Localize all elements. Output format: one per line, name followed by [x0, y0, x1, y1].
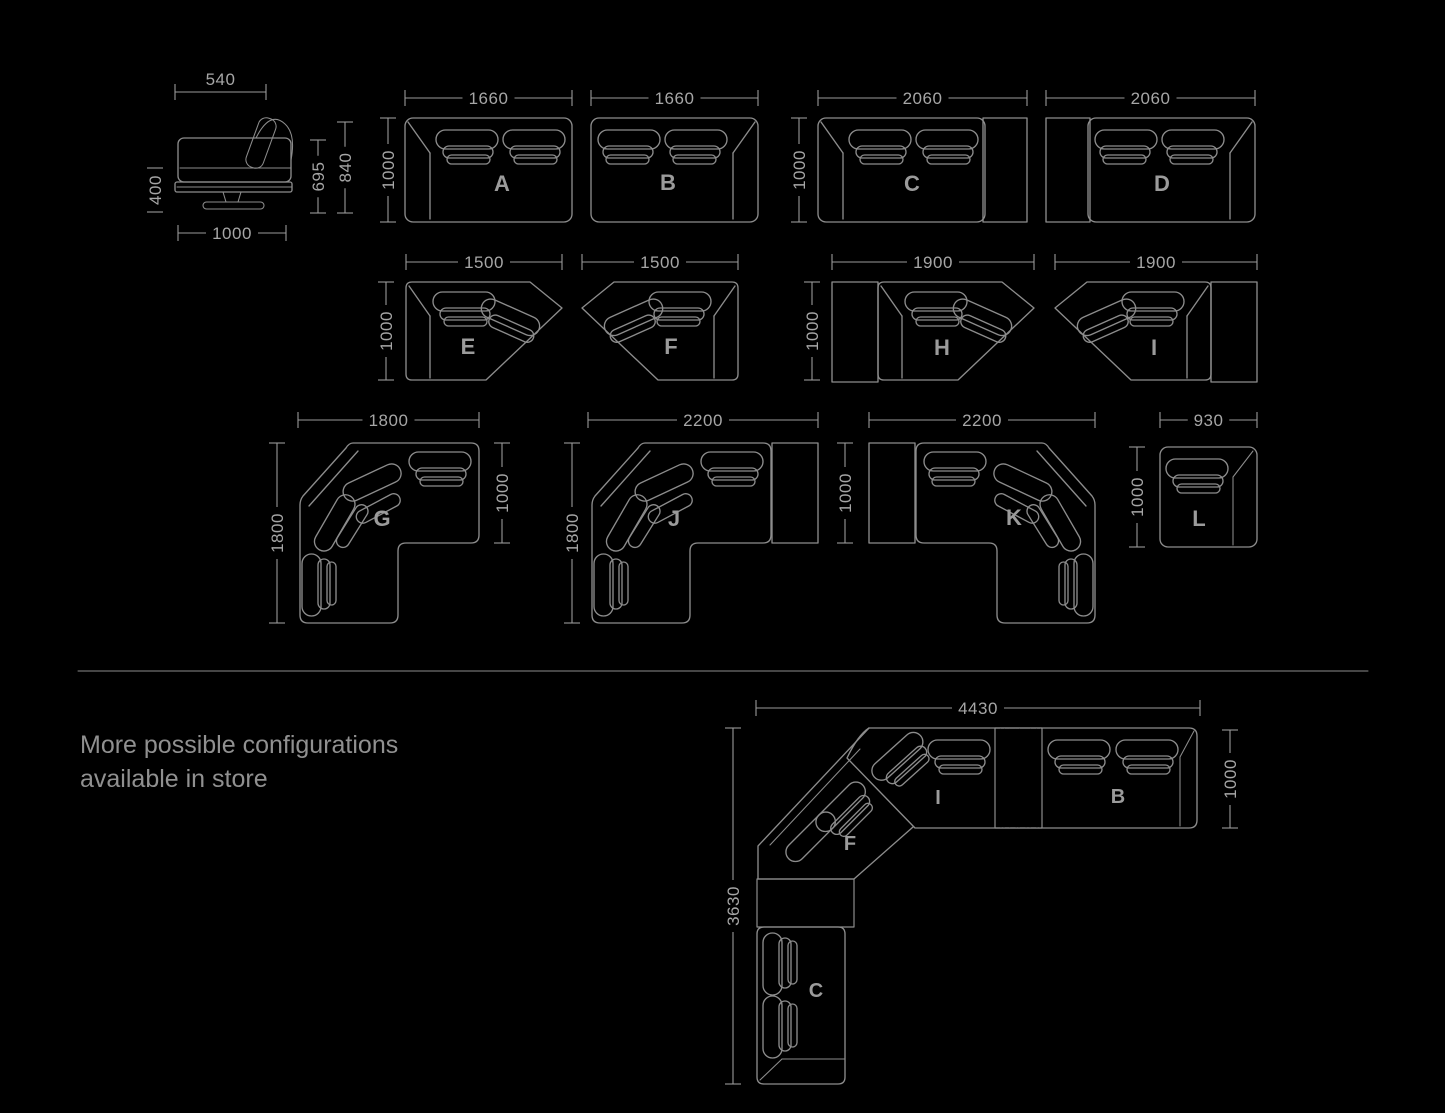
- dimension: 1000: [178, 224, 286, 243]
- dimension-label: 1000: [379, 150, 398, 190]
- config-module-c-label: C: [809, 980, 823, 1002]
- config-module-f-label: F: [844, 833, 856, 855]
- module-d-drawing: [1046, 118, 1255, 222]
- dimension: 1500: [406, 253, 562, 272]
- dimension-label: 2060: [903, 89, 943, 108]
- store-note: More possible configurations available i…: [80, 731, 398, 793]
- dimension-label: 1500: [464, 253, 504, 272]
- diagram-canvas: 5401000400695840166016602060206010001000…: [0, 0, 1445, 1113]
- store-note-line2: available in store: [80, 765, 268, 793]
- module-j-label: J: [668, 506, 680, 531]
- module-h-drawing: [832, 282, 1034, 382]
- module-a-drawing: [405, 118, 572, 222]
- dimension: 1900: [1055, 253, 1257, 272]
- module-b-label: B: [660, 170, 676, 195]
- dimension-label: 1000: [790, 150, 809, 190]
- dimension: 400: [146, 168, 165, 212]
- dimension-label: 400: [146, 175, 165, 205]
- dimension: 1800: [268, 443, 287, 623]
- dimension: 695: [309, 140, 328, 213]
- dimension: 2060: [1046, 89, 1255, 108]
- module-l-label: L: [1192, 506, 1205, 531]
- dimension: 1000: [1128, 447, 1147, 547]
- dimension: 1000: [1221, 730, 1240, 828]
- dimension-label: 2060: [1131, 89, 1171, 108]
- combined-configuration-drawing: [757, 728, 1197, 1084]
- module-labels: A B C D E F H I G J K L I B F C: [373, 170, 1205, 1002]
- module-c-drawing: [818, 118, 1027, 222]
- module-i-label: I: [1151, 335, 1157, 360]
- module-f-label: F: [664, 334, 677, 359]
- dimension: 1660: [405, 89, 572, 108]
- dimension-label: 4430: [958, 699, 998, 718]
- dimension-label: 1800: [369, 411, 409, 430]
- dimension: 3630: [724, 728, 743, 1084]
- module-g-label: G: [373, 506, 390, 531]
- dimension: 2060: [818, 89, 1027, 108]
- dimension-label: 1000: [493, 473, 512, 513]
- dimension: 1800: [298, 411, 479, 430]
- dimension-label: 1000: [377, 311, 396, 351]
- dimension-label: 1800: [268, 513, 287, 553]
- dimension-label: 2200: [962, 411, 1002, 430]
- module-j-drawing: [592, 443, 818, 623]
- dimension-label: 695: [309, 162, 328, 192]
- dimension-label: 930: [1194, 411, 1224, 430]
- dimension: 1800: [563, 443, 582, 623]
- module-h-label: H: [934, 335, 950, 360]
- dimension-label: 1900: [1136, 253, 1176, 272]
- dimension: 1000: [803, 282, 822, 380]
- dimension-label: 2200: [683, 411, 723, 430]
- dimension: 1660: [591, 89, 758, 108]
- store-note-line1: More possible configurations: [80, 731, 398, 759]
- module-a-label: A: [494, 171, 510, 196]
- dimension: 1500: [582, 253, 738, 272]
- module-e-drawing: [406, 282, 562, 380]
- dimension-label: 1500: [640, 253, 680, 272]
- dimension: 1000: [790, 118, 809, 222]
- dimension: 840: [336, 122, 355, 213]
- dimension-label: 1660: [655, 89, 695, 108]
- dimension: 1000: [379, 118, 398, 222]
- config-module-i-label: I: [935, 787, 941, 809]
- module-i-drawing: [1055, 282, 1257, 382]
- module-d-label: D: [1154, 171, 1170, 196]
- dimension-label: 1660: [469, 89, 509, 108]
- dimension-label: 1000: [803, 311, 822, 351]
- dimension-label: 1800: [563, 513, 582, 553]
- module-l-drawing: [1160, 447, 1257, 547]
- dimension-label: 1000: [212, 224, 252, 243]
- module-e-label: E: [461, 334, 476, 359]
- sofa-side-view: [175, 115, 293, 209]
- dimension: 1000: [493, 443, 512, 543]
- dimension: 2200: [588, 411, 818, 430]
- sofa-configuration-sheet: 5401000400695840166016602060206010001000…: [0, 0, 1445, 1113]
- module-c-label: C: [904, 171, 920, 196]
- dimension: 1900: [832, 253, 1034, 272]
- dimension: 4430: [756, 699, 1200, 718]
- dimension-label: 3630: [724, 886, 743, 926]
- dimension: 540: [175, 70, 266, 100]
- module-k-label: K: [1006, 505, 1022, 530]
- dimension: 930: [1160, 411, 1257, 430]
- dimension: 1000: [377, 282, 396, 380]
- module-f-drawing: [582, 282, 738, 380]
- dimension-label: 540: [206, 70, 236, 89]
- dimension: 1000: [836, 443, 855, 543]
- module-g-drawing: [300, 443, 479, 623]
- module-k-drawing: [869, 443, 1095, 623]
- dimension-label: 1000: [836, 473, 855, 513]
- dimension-label: 840: [336, 153, 355, 183]
- config-module-b-label: B: [1111, 786, 1125, 808]
- dimension: 2200: [869, 411, 1095, 430]
- dimension-label: 1000: [1221, 759, 1240, 799]
- dimension-label: 1000: [1128, 477, 1147, 517]
- dimension-label: 1900: [913, 253, 953, 272]
